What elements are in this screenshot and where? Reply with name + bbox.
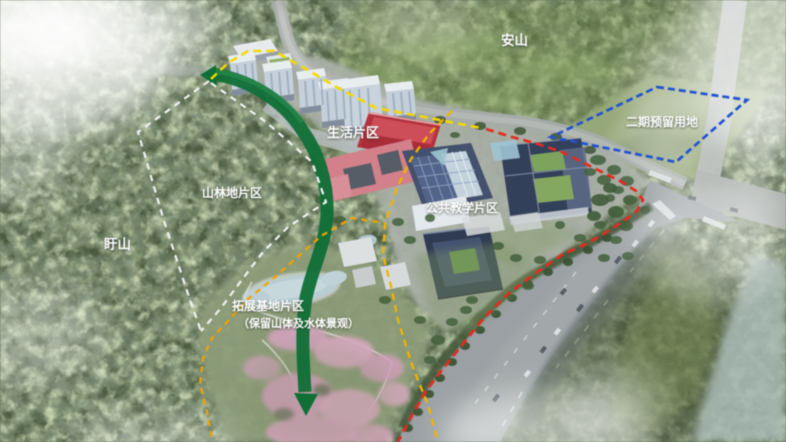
svg-text:（保留山体及水体景观）: （保留山体及水体景观）: [238, 316, 359, 330]
svg-text:安山: 安山: [501, 32, 528, 48]
svg-text:公共教学片区: 公共教学片区: [426, 200, 498, 215]
svg-text:盱山: 盱山: [104, 237, 131, 252]
svg-text:生活片区: 生活片区: [327, 125, 379, 140]
svg-text:山林地片区: 山林地片区: [202, 185, 262, 200]
svg-text:二期预留用地: 二期预留用地: [626, 114, 698, 129]
svg-text:拓展基地片区: 拓展基地片区: [232, 298, 304, 313]
